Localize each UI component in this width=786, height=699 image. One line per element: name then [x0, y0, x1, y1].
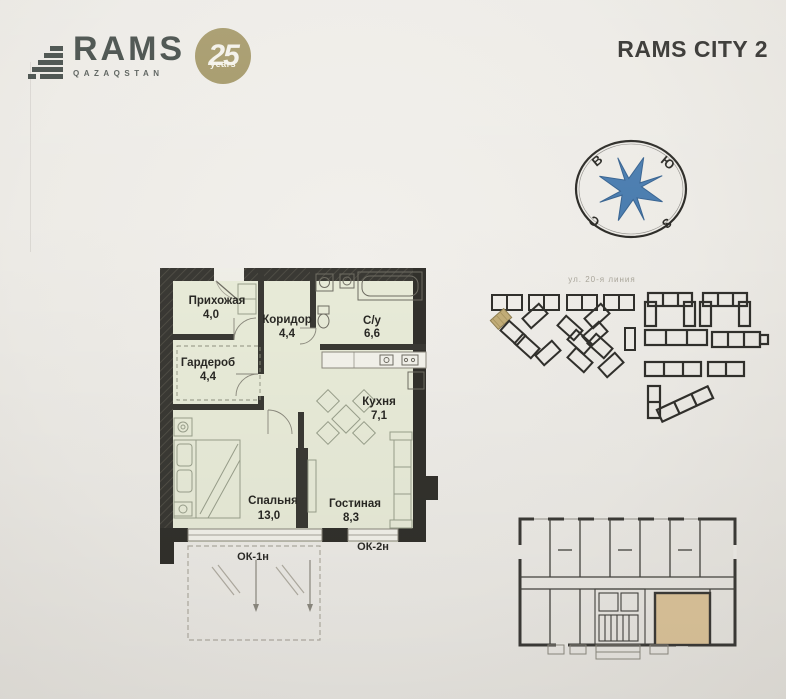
room-area: 8,3	[343, 512, 359, 524]
brochure-page: RAMS QAZAQSTAN 25 years RAMS CITY 2 В Ю …	[0, 0, 786, 699]
apartment-floor-plan: Прихожая 4,0 Коридор 4,4 Гардероб 4,4 С/…	[150, 262, 450, 662]
logo-bars-icon	[28, 46, 64, 84]
window-1-label: ОК-1н	[237, 551, 269, 563]
site-plan: ул. 20-я линия	[480, 268, 780, 428]
room-name: Прихожая	[189, 295, 246, 307]
room-name: Спальня	[248, 495, 298, 507]
floor-overview-plan	[500, 505, 786, 695]
site-diagonal-buildings	[500, 304, 635, 377]
room-name: С/у	[363, 315, 382, 327]
paper-crease	[30, 62, 31, 252]
project-title: RAMS CITY 2	[617, 36, 768, 63]
anniversary-badge: 25 years	[195, 28, 251, 84]
logo-text: RAMS QAZAQSTAN	[73, 32, 185, 78]
room-bathroom: С/у 6,6	[363, 315, 382, 340]
room-name: Коридор	[262, 314, 312, 326]
room-area: 6,6	[364, 328, 380, 340]
room-area: 4,0	[203, 309, 219, 321]
room-area: 7,1	[371, 410, 388, 422]
room-name: Кухня	[362, 396, 396, 408]
site-chevron-building	[648, 386, 713, 422]
room-area: 4,4	[200, 371, 217, 383]
entrance-door	[214, 268, 244, 281]
badge-years-label: years	[195, 59, 251, 69]
windows	[188, 529, 398, 541]
overview-highlighted-unit	[655, 593, 710, 645]
room-area: 4,4	[279, 328, 296, 340]
logo-wordmark: RAMS	[73, 32, 185, 66]
room-area: 13,0	[258, 510, 280, 522]
compass-south-label: Ю	[658, 152, 678, 172]
room-name: Гостиная	[329, 498, 381, 510]
logo-country: QAZAQSTAN	[73, 69, 185, 78]
window-2-label: ОК-2н	[357, 541, 389, 553]
site-buildings-row	[492, 295, 634, 310]
room-name: Гардероб	[181, 357, 235, 369]
overview-balconies	[548, 645, 668, 659]
compass-rose: В Ю З С	[570, 136, 692, 246]
site-highlighted-building	[490, 309, 511, 330]
street-label: ул. 20-я линия	[568, 275, 635, 284]
rams-logo: RAMS QAZAQSTAN 25 years	[28, 32, 251, 84]
site-right-buildings	[645, 293, 768, 422]
